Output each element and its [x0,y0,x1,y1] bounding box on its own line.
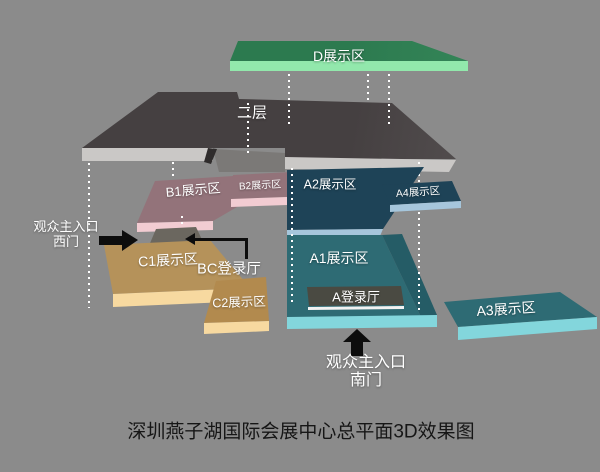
label-area-a3: A3展示区 [476,297,536,321]
label-area-a2: A2展示区 [304,174,357,193]
label-area-a4: A4展示区 [395,183,440,201]
arrow-left-icon [185,233,195,245]
bc-leader-line [195,238,247,241]
dotted-column [418,212,420,310]
entrance-west-line1: 观众主入口 [33,219,98,234]
entrance-south-line1: 观众主入口 [326,354,406,372]
entrance-south-text: 观众主入口 南门 [326,354,406,390]
dotted-column [288,74,290,128]
label-area-a1: A1展示区 [309,248,368,268]
site-plan-3d-diagram: D展示区 二层 B1展示区 B2展示区 A2展示区 A4展示区 A1展示区 A登… [0,0,600,472]
arrow-right-icon [99,236,122,245]
label-area-d: D展示区 [313,46,365,66]
diagram-caption: 深圳燕子湖国际会展中心总平面3D效果图 [127,417,474,444]
label-a-hall: A登录厅 [332,287,380,306]
entrance-south-line2: 南门 [326,372,406,390]
dotted-column [388,74,390,128]
dotted-column [291,168,293,306]
label-second-floor: 二层 [237,102,267,123]
entrance-west-text: 观众主入口 西门 [33,219,98,249]
label-area-c1: C1展示区 [138,248,199,271]
dotted-column [367,74,369,102]
arrow-right-icon [122,230,138,251]
label-bc-hall: BC登录厅 [197,258,261,279]
entrance-west-line2: 西门 [33,234,98,249]
arrow-up-icon [343,329,371,342]
bc-leader-line [245,238,248,259]
label-area-c2: C2展示区 [212,291,266,312]
label-area-b2: B2展示区 [239,175,282,192]
dotted-column [172,162,174,178]
